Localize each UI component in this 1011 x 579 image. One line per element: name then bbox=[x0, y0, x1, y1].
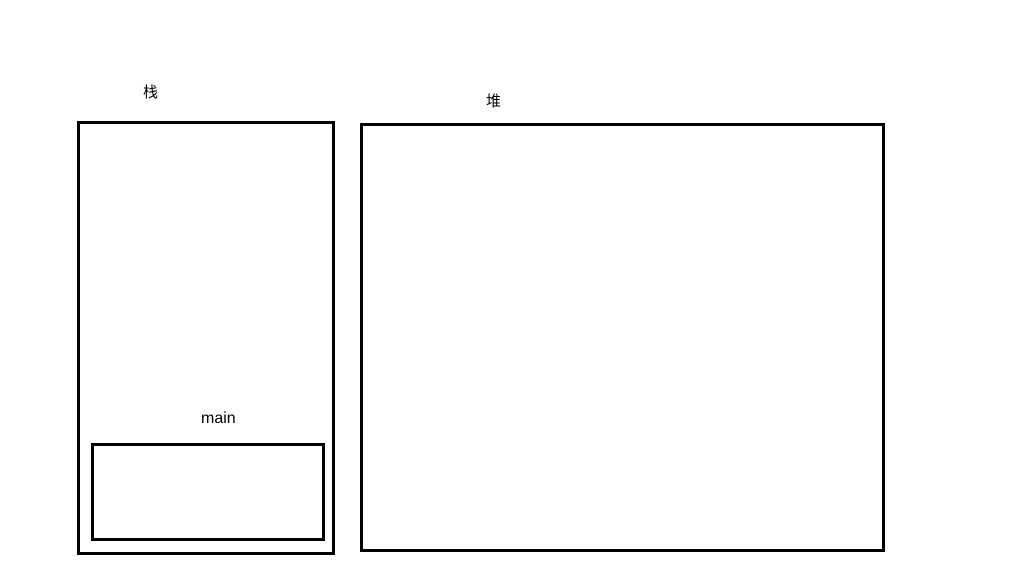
stack-label: 栈 bbox=[143, 85, 158, 100]
memory-layout-diagram: 栈 main 堆 bbox=[0, 0, 1011, 579]
main-frame-box bbox=[91, 443, 325, 541]
heap-label: 堆 bbox=[486, 94, 501, 109]
heap-box bbox=[360, 123, 885, 552]
main-frame-label: main bbox=[201, 411, 236, 427]
